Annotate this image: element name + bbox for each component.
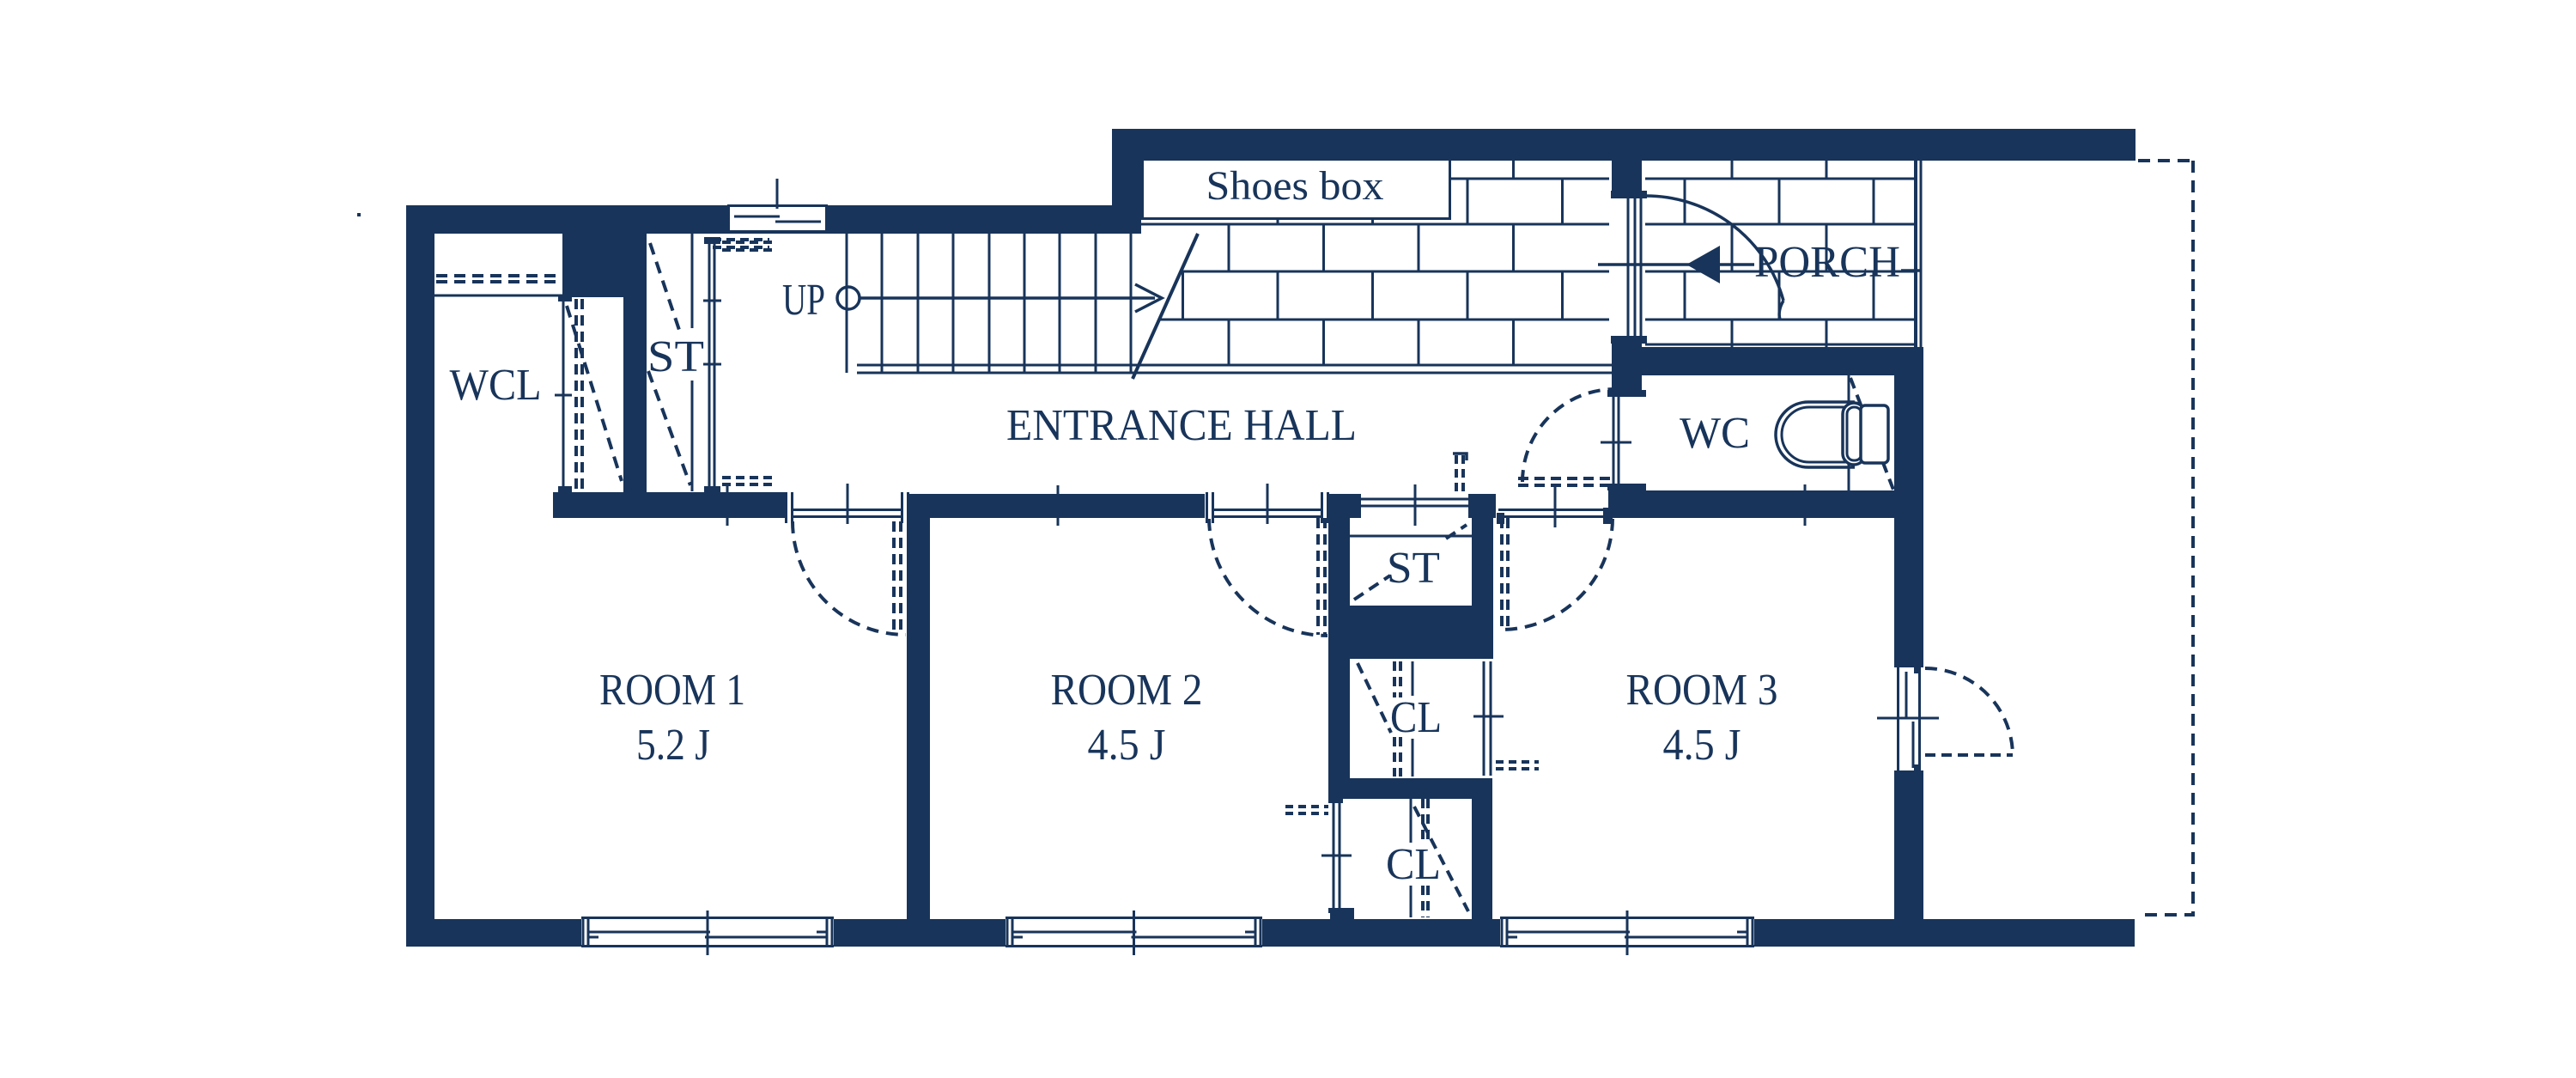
svg-text:WC: WC [1680, 409, 1750, 458]
svg-text:UP: UP [782, 276, 825, 325]
svg-text:ST: ST [1387, 544, 1440, 593]
svg-text:4.5 J: 4.5 J [1088, 721, 1166, 770]
svg-text:ROOM 2: ROOM 2 [1051, 666, 1203, 715]
svg-text:CL: CL [1390, 693, 1442, 742]
svg-text:CL: CL [1386, 840, 1441, 889]
svg-text:ROOM 3: ROOM 3 [1626, 666, 1778, 715]
svg-text:ST: ST [647, 332, 704, 381]
svg-text:4.5 J: 4.5 J [1663, 721, 1741, 770]
svg-text:PORCH: PORCH [1754, 238, 1900, 287]
svg-text:Shoes box: Shoes box [1206, 163, 1384, 209]
svg-text:ENTRANCE HALL: ENTRANCE HALL [1006, 401, 1357, 450]
svg-text:5.2 J: 5.2 J [636, 721, 710, 770]
svg-text:WCL: WCL [450, 361, 542, 410]
svg-text:ROOM 1: ROOM 1 [599, 666, 745, 715]
